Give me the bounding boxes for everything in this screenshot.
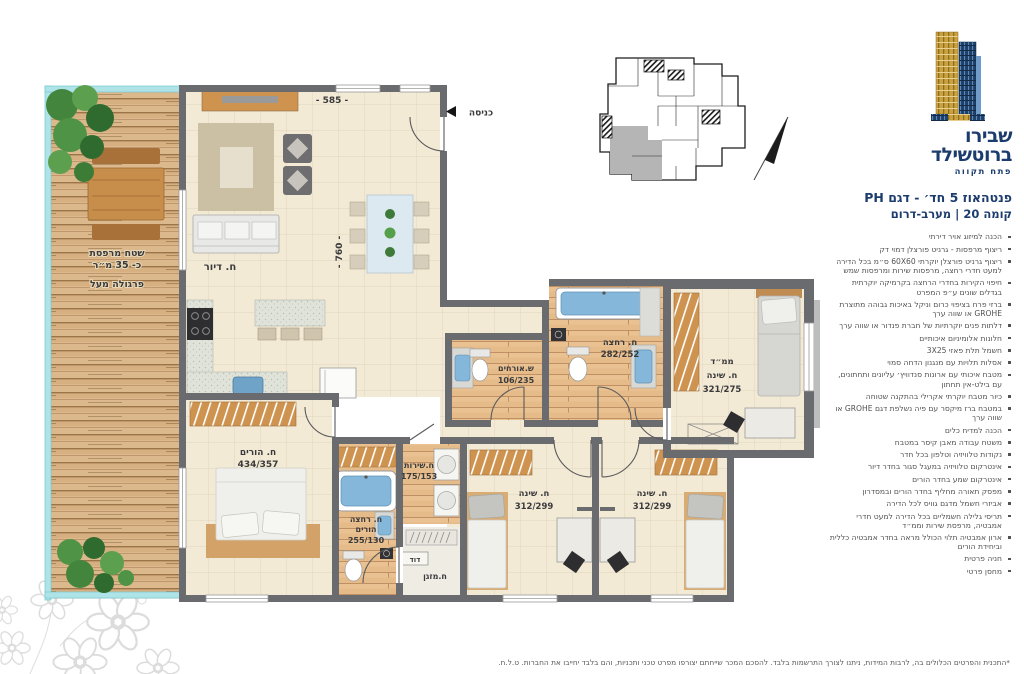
spec-item: כיור מטבח יוקרתי אקרילי בהתקנה שטוחה xyxy=(828,392,1012,401)
toilet xyxy=(470,349,490,381)
tv xyxy=(222,96,278,103)
kitchen-island xyxy=(255,300,325,326)
bedroom2-label: ח. שינה xyxy=(637,489,668,499)
living-room-label: ח. דיור xyxy=(204,262,236,273)
wardrobe xyxy=(674,293,699,391)
service-dim: 175/153 xyxy=(401,472,437,481)
boiler-label: דוד xyxy=(410,556,421,564)
spec-list: הכנה למיזוג אויר דירתיריצוף מרפסות - גרנ… xyxy=(828,232,1012,575)
plan-title: פנטהאוז 5 חד׳ - דגם PH xyxy=(828,190,1012,205)
ac-label: ח.מזגן xyxy=(423,572,447,581)
spec-item: אינטרקום שמע בחדר הורים xyxy=(828,475,1012,484)
flyer-page: שטח מרפסת כ- 35 מ״ר פרגולה מעל xyxy=(0,0,1024,674)
key-plan xyxy=(600,58,745,180)
single-bed xyxy=(756,288,802,396)
outdoor-table xyxy=(88,148,164,240)
plan-subtitle: קומה 20 | מערב-דרום xyxy=(828,207,1012,221)
info-panel: שבירו ברוטשילד פתח תקווה פנטהאוז 5 חד׳ -… xyxy=(828,30,1012,579)
parents-bath-label: ח. רחצה xyxy=(350,515,382,524)
master-dim: 434/357 xyxy=(238,460,279,470)
spec-item: במטבח ברז מיקסר עם פיה נשלפת דגם GROHE א… xyxy=(828,404,1012,422)
spec-item: חיפוי הקירות בחדרי הרחצה בקרמיקה יוקרתית… xyxy=(828,278,1012,296)
spec-item: תריסי גלילה חשמליים בכל הדירה למעט חדרי … xyxy=(828,512,1012,530)
floor-plan: שטח מרפסת כ- 35 מ״ר פרגולה מעל xyxy=(0,0,828,674)
exterior-ledge xyxy=(814,300,820,428)
spec-item: ארון אמבטיה תלוי הכולל מראה בחדר אמבטיה … xyxy=(828,533,1012,551)
master-label: ח. הורים xyxy=(240,448,276,458)
north-arrow-icon xyxy=(754,117,788,180)
brand-city: פתח תקווה xyxy=(828,168,1012,177)
mamad-label: ממ״ד xyxy=(710,357,733,367)
sofa xyxy=(193,215,279,253)
spec-item: מפסק תאורה מחליף בחדר הורים ובמסדרון xyxy=(828,487,1012,496)
spec-item: מטבח איכותי עם ארונות סנדוויץ׳ עליונים ו… xyxy=(828,370,1012,388)
niche xyxy=(551,328,566,341)
entrance-label: כניסה xyxy=(469,109,493,119)
spec-item: דלתות פנים יוקרתיות של חברת פנדור או שוו… xyxy=(828,321,1012,330)
brand-name-line2: ברוטשילד xyxy=(828,146,1012,165)
spec-item: חניה פרטית xyxy=(828,554,1012,563)
spec-item: ריצוף גרניט פורצלן יוקרתי 60X60 ס״מ בכל … xyxy=(828,257,1012,275)
spec-item: חלונות אלומיניום איכותיים xyxy=(828,334,1012,343)
bathroom-dim: 282/252 xyxy=(601,350,640,360)
spec-item: הכנה למיזוג אויר דירתי xyxy=(828,232,1012,241)
entrance: כניסה xyxy=(446,106,493,119)
terrace-area-label: שטח מרפסת xyxy=(89,248,145,259)
guest-wc-dim: 106/235 xyxy=(498,376,535,385)
pergola-label: פרגולה מעל xyxy=(90,279,144,290)
wardrobe xyxy=(190,402,296,426)
spec-item: אביזרי חשמל מדגם גוויס לכל הדירה xyxy=(828,499,1012,508)
parents-bath-dim: 255/130 xyxy=(348,536,385,545)
spec-item: הכנה למדיח כלים xyxy=(828,426,1012,435)
cooktop xyxy=(187,308,213,340)
kitchen-sink xyxy=(233,377,263,394)
dimension-585: - 585 - xyxy=(316,96,349,106)
spec-item: אינטרקום טלוויזיה במעגל סגור בחדר דיור xyxy=(828,462,1012,471)
single-bed xyxy=(466,492,508,590)
desk xyxy=(745,408,795,438)
footnote: *התכנית והפרטים הכלולים בה, לרבות המידות… xyxy=(450,658,1010,667)
sink xyxy=(455,355,470,381)
terrace: שטח מרפסת כ- 35 מ״ר פרגולה מעל xyxy=(45,85,181,600)
spec-item: מחסן פרטי xyxy=(828,567,1012,576)
wardrobe xyxy=(470,450,532,475)
spec-item: ריצוף מרפסות - גרניט פורצלן דמוי דק xyxy=(828,245,1012,254)
brand-logo xyxy=(828,30,1012,122)
bathroom-label: ח. רחצה xyxy=(603,338,638,348)
guest-wc-label: ש.אורחים xyxy=(498,364,534,373)
spec-item: חשמל תלת פאזי 3X25 xyxy=(828,346,1012,355)
tower-logo-icon xyxy=(928,30,990,122)
bedroom2-dim: 312/299 xyxy=(633,502,672,512)
spec-item: ברזי פרח בציפוי כרום וניקל באיכות גבוהה … xyxy=(828,300,1012,318)
mamad-dim: 321/275 xyxy=(703,385,742,395)
glass-railing-bottom xyxy=(45,592,181,598)
dimension-760: - 760 - xyxy=(335,235,345,268)
spec-item: נקודות טלוויזיה וטלפון בכל חדר xyxy=(828,450,1012,459)
bedroom1-label: ח. שינה xyxy=(519,489,550,499)
bedroom1-dim: 312/299 xyxy=(515,502,554,512)
terrace-area-value: כ- 35 מ״ר xyxy=(93,260,142,271)
mamad-label2: ח. שינה xyxy=(707,371,738,381)
toilet xyxy=(567,347,589,381)
single-bed xyxy=(684,492,726,590)
service-label: ח.שירות xyxy=(404,461,434,470)
spec-item: משטח עבודה מאבן קיסר במטבח xyxy=(828,438,1012,447)
dining-set xyxy=(350,195,429,273)
spec-item: אסלות תלויות עם מנגנון הדחה סמוי xyxy=(828,358,1012,367)
parents-bath-label2: הורים xyxy=(356,525,377,534)
entrance-arrow-icon xyxy=(446,106,456,117)
